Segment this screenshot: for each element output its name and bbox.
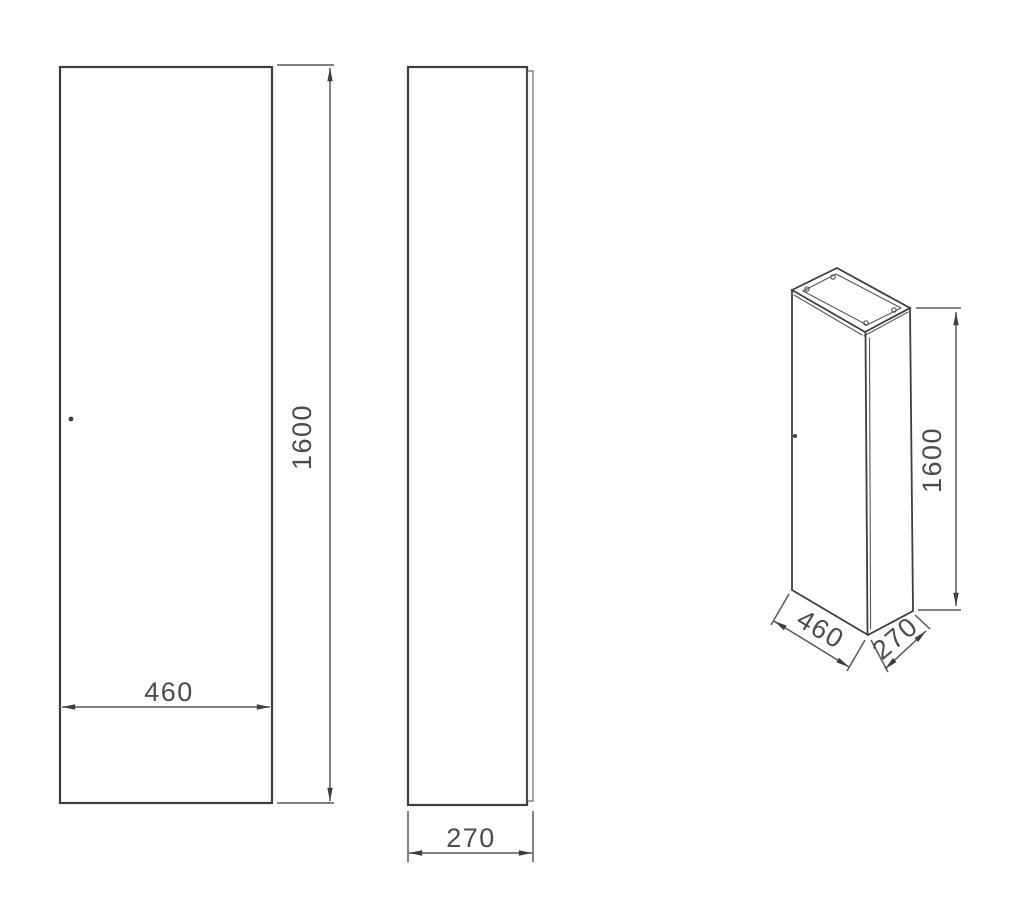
iso-height-dim-label: 1600 (917, 427, 947, 493)
door-handle-dot (69, 417, 74, 422)
front-height-dimension: 1600 (277, 65, 334, 803)
iso-back-right-edge (910, 308, 913, 610)
iso-width-dim-label: 460 (792, 604, 850, 655)
side-view-outline (408, 67, 527, 805)
drawing-svg: 460 1600 270 (0, 0, 1024, 915)
front-view: 460 1600 (60, 65, 334, 803)
iso-depth-dimension: 270 (867, 611, 930, 672)
front-width-dim-label: 460 (144, 677, 194, 707)
iso-door-front-edge (866, 333, 868, 634)
technical-drawing-canvas: 460 1600 270 (0, 0, 1024, 915)
door-handle-dot (793, 434, 797, 438)
iso-top-thickness-edge (794, 295, 862, 335)
extension-line (771, 594, 789, 625)
iso-door-gap-edge (870, 338, 871, 629)
iso-height-dimension: 1600 (916, 308, 961, 610)
side-view: 270 (408, 67, 533, 862)
iso-top-inner-panel (803, 274, 901, 325)
extension-line (847, 640, 865, 671)
front-height-dim-label: 1600 (287, 404, 317, 470)
side-depth-dim-label: 270 (446, 823, 496, 853)
iso-depth-dim-label: 270 (867, 611, 924, 666)
isometric-view: 1600 460 270 (771, 268, 961, 672)
front-width-dimension: 460 (62, 677, 270, 707)
side-depth-dimension: 270 (408, 811, 533, 862)
iso-top-face (792, 268, 910, 332)
